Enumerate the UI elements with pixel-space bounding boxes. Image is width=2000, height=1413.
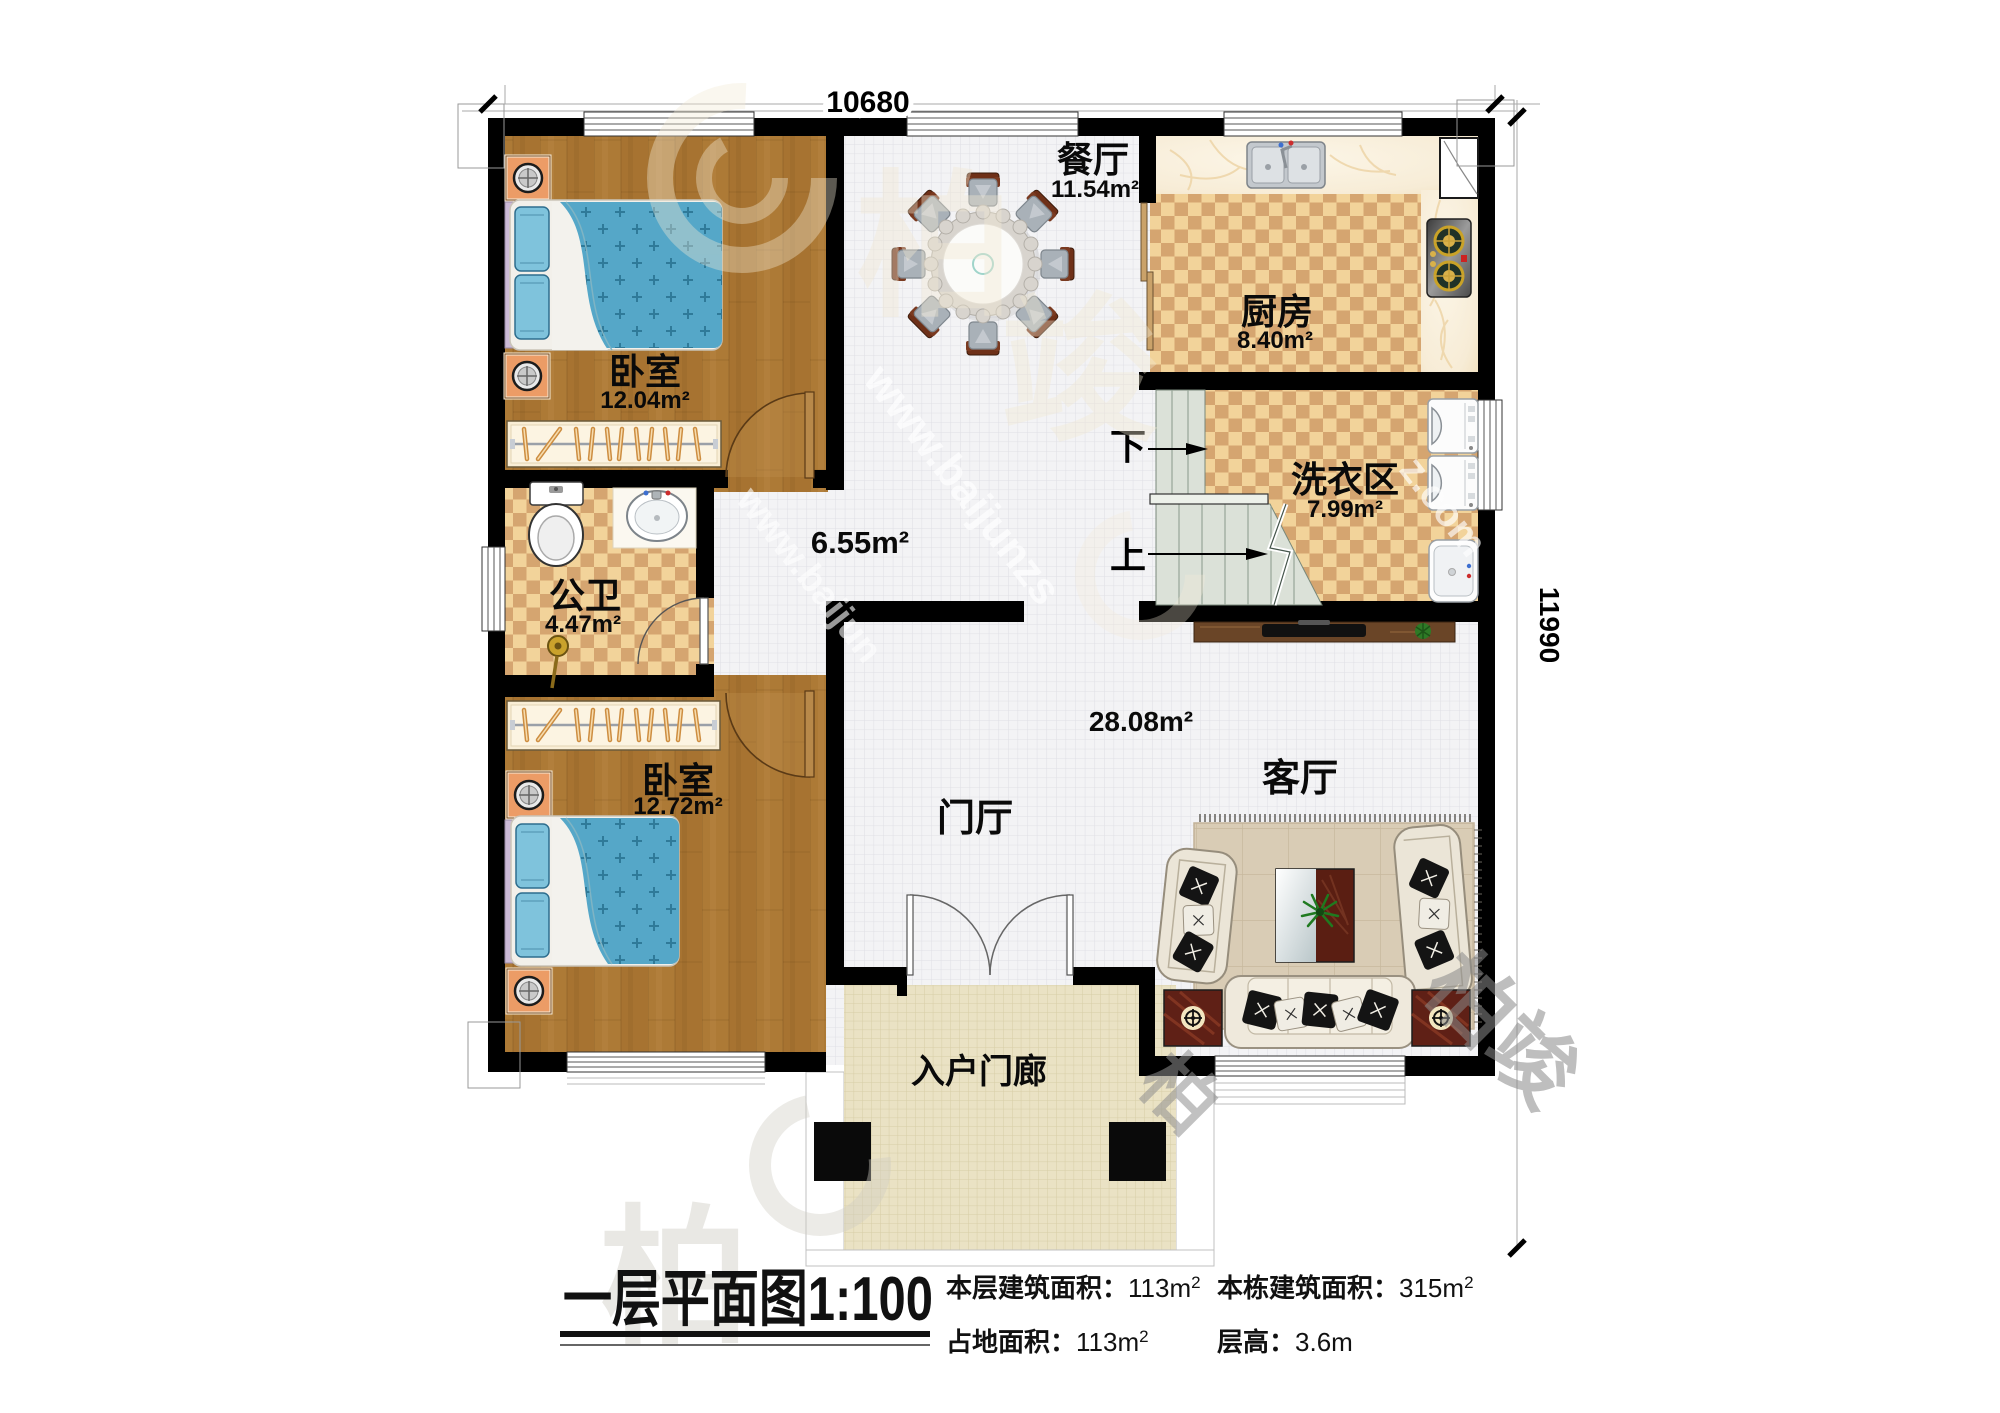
svg-text:门厅: 门厅 (937, 798, 1013, 840)
svg-text:28.08m²: 28.08m² (1089, 706, 1193, 737)
svg-text:4.47m²: 4.47m² (545, 611, 621, 638)
svg-text:本层建筑面积：113m2: 本层建筑面积：113m2 (946, 1273, 1201, 1303)
svg-text:餐厅: 餐厅 (1057, 139, 1129, 180)
svg-text:一层平面图1:100: 一层平面图1:100 (563, 1265, 933, 1334)
svg-text:12.72m²: 12.72m² (633, 793, 722, 820)
svg-text:占地面积：113m2: 占地面积：113m2 (946, 1327, 1149, 1357)
svg-text:公卫: 公卫 (549, 575, 621, 616)
svg-text:客厅: 客厅 (1262, 757, 1338, 800)
svg-text:12.04m²: 12.04m² (600, 387, 689, 414)
svg-text:厨房: 厨房 (1241, 291, 1313, 332)
svg-text:6.55m²: 6.55m² (811, 525, 909, 560)
svg-text:卧室: 卧室 (609, 351, 681, 392)
svg-text:10680: 10680 (826, 86, 909, 119)
svg-text:洗衣区: 洗衣区 (1291, 459, 1399, 500)
svg-text:7.99m²: 7.99m² (1307, 496, 1383, 523)
svg-text:本栋建筑面积：315m2: 本栋建筑面积：315m2 (1217, 1273, 1474, 1303)
svg-text:11990: 11990 (1534, 587, 1565, 663)
svg-text:8.40m²: 8.40m² (1237, 327, 1313, 354)
svg-text:柏: 柏 (856, 160, 1014, 336)
svg-text:11.54m²: 11.54m² (1051, 176, 1139, 203)
svg-text:竣: 竣 (1000, 284, 1158, 460)
svg-text:层高：3.6m: 层高：3.6m (1217, 1327, 1353, 1357)
svg-text:上: 上 (1110, 535, 1146, 576)
svg-text:入户门廊: 入户门廊 (911, 1053, 1047, 1091)
